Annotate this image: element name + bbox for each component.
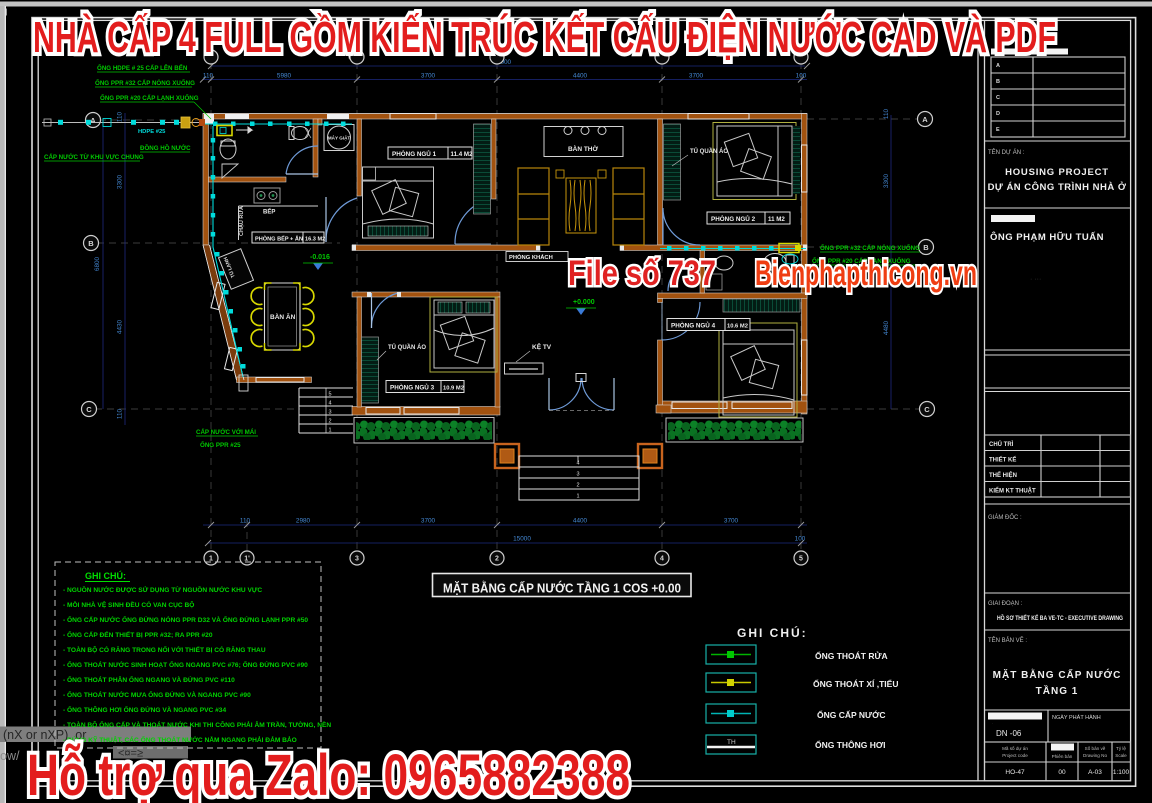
svg-text:C: C — [996, 95, 1000, 101]
svg-text:1: 1 — [328, 428, 331, 434]
svg-text:D: D — [996, 111, 1000, 117]
svg-text:BÀN ĂN: BÀN ĂN — [270, 312, 296, 321]
svg-text:KIỂM KT THUẬT: KIỂM KT THUẬT — [989, 488, 1036, 495]
svg-text:DỰ ÁN CÔNG TRÌNH NHÀ Ở: DỰ ÁN CÔNG TRÌNH NHÀ Ở — [988, 181, 1127, 193]
svg-text:BẾP: BẾP — [263, 209, 275, 216]
svg-text:MẶT BẰNG CẤP NƯỚC: MẶT BẰNG CẤP NƯỚC — [993, 668, 1122, 681]
svg-text:2: 2 — [328, 419, 331, 425]
svg-text:GIÁM ĐỐC :: GIÁM ĐỐC : — [988, 514, 1022, 521]
svg-text:11 M2: 11 M2 — [768, 216, 785, 223]
svg-text:A: A — [922, 115, 928, 124]
svg-text:B: B — [996, 79, 1000, 85]
svg-text:2980: 2980 — [296, 518, 311, 525]
svg-text:00: 00 — [1058, 769, 1066, 776]
svg-text:+0.000: +0.000 — [573, 299, 595, 306]
svg-text:100: 100 — [796, 73, 807, 80]
svg-text:C: C — [86, 405, 92, 414]
svg-text:A-03: A-03 — [1088, 769, 1102, 776]
svg-text:1': 1' — [244, 556, 250, 563]
svg-text:PHÒNG BẾP + ĂN: PHÒNG BẾP + ĂN — [255, 235, 303, 243]
svg-text:PHÒNG KHÁCH: PHÒNG KHÁCH — [509, 253, 553, 261]
svg-text:ỐNG THÔNG HƠI: ỐNG THÔNG HƠI — [815, 739, 886, 750]
svg-text:NHÀ CẤP 4 FULL GỒM KIẾN TRÚC K: NHÀ CẤP 4 FULL GỒM KIẾN TRÚC KẾT CẤU ĐIỆ… — [33, 12, 1056, 62]
svg-text:HỒ SƠ THIẾT KẾ BA VE-TC - EXEC: HỒ SƠ THIẾT KẾ BA VE-TC - EXECUTIVE DRAW… — [997, 615, 1123, 622]
svg-text:4: 4 — [660, 556, 664, 563]
svg-text:Bienphapthicong.vn: Bienphapthicong.vn — [755, 253, 977, 293]
svg-text:KỆ TV: KỆ TV — [532, 342, 552, 351]
svg-text:110: 110 — [203, 73, 214, 80]
svg-text:Scale: Scale — [1115, 753, 1127, 758]
svg-text:Mã số dự án: Mã số dự án — [1002, 746, 1028, 751]
svg-text:.: . — [992, 720, 993, 726]
svg-text:-0.016: -0.016 — [310, 254, 330, 261]
svg-text:TỦ QUẦN ÁO: TỦ QUẦN ÁO — [388, 344, 426, 351]
svg-text:TH: TH — [727, 739, 736, 746]
svg-text:Drawing No: Drawing No — [1083, 753, 1107, 758]
svg-text:ĐỒNG HỒ NƯỚC: ĐỒNG HỒ NƯỚC — [140, 144, 191, 152]
svg-text:2: 2 — [576, 483, 579, 489]
svg-text:GHI CHÚ:: GHI CHÚ: — [737, 625, 808, 640]
svg-text:3700: 3700 — [689, 73, 704, 80]
svg-text:CHẬU RỬA: CHẬU RỬA — [238, 206, 245, 236]
svg-text:3: 3 — [576, 472, 579, 478]
svg-text:110: 110 — [240, 518, 251, 525]
svg-text:15000: 15000 — [513, 536, 531, 543]
svg-text:ỐNG CẤP NƯỚC: ỐNG CẤP NƯỚC — [817, 709, 885, 720]
svg-text:ỐNG THOÁT XÍ ,TIỂU: ỐNG THOÁT XÍ ,TIỂU — [813, 678, 898, 689]
svg-text:PHÒNG NGỦ 2: PHÒNG NGỦ 2 — [711, 214, 756, 223]
svg-text:A: A — [90, 116, 96, 125]
svg-text:B: B — [88, 239, 94, 248]
svg-text:Hỗ trợ qua Zalo: 0965882388: Hỗ trợ qua Zalo: 0965882388 — [27, 743, 630, 803]
svg-text:PHÒNG NGỦ 4: PHÒNG NGỦ 4 — [671, 321, 716, 330]
svg-text:MÁY GIẶT: MÁY GIẶT — [328, 135, 351, 141]
svg-text:ÔNG PHẠM HỮU TUẤN: ÔNG PHẠM HỮU TUẤN — [990, 231, 1104, 243]
svg-text:TẦNG 1: TẦNG 1 — [1036, 684, 1079, 697]
svg-text:1:100: 1:100 — [1113, 769, 1130, 776]
svg-text:TỦ QUẦN ÁO: TỦ QUẦN ÁO — [690, 148, 728, 155]
svg-text:CẤP NƯỚC VỚI MÁI: CẤP NƯỚC VỚI MÁI — [196, 428, 256, 436]
svg-text:HDPE #25: HDPE #25 — [138, 129, 166, 135]
svg-text:3700: 3700 — [421, 518, 436, 525]
svg-text:3: 3 — [328, 410, 331, 416]
svg-text:E: E — [996, 127, 1000, 133]
svg-text:CHỦ TRÌ: CHỦ TRÌ — [989, 440, 1014, 448]
svg-text:3300: 3300 — [883, 173, 890, 188]
svg-text:Project code: Project code — [1002, 753, 1028, 758]
svg-text:MẶT BẰNG CẤP NƯỚC TẦNG 1 COS: MẶT BẰNG CẤP NƯỚC TẦNG 1 COS +0.00 — [443, 581, 681, 596]
svg-text:1: 1 — [209, 556, 213, 563]
svg-text:2: 2 — [495, 556, 499, 563]
svg-text:GIAI ĐOẠN :: GIAI ĐOẠN : — [988, 601, 1023, 607]
svg-text:ỐNG HDPE # 25 CẤP LÊN BỂN: ỐNG HDPE # 25 CẤP LÊN BỂN — [97, 64, 188, 72]
svg-text:NGÀY PHÁT HÀNH: NGÀY PHÁT HÀNH — [1052, 714, 1101, 721]
svg-text:10.6 M2: 10.6 M2 — [727, 324, 748, 330]
svg-text:ỐNG THOÁT RỬA: ỐNG THOÁT RỬA — [815, 650, 888, 661]
svg-text:3300: 3300 — [117, 174, 124, 189]
svg-text:ỐNG PPR #32 CẤP NÓNG XUỐNG: ỐNG PPR #32 CẤP NÓNG XUỐNG — [820, 244, 920, 252]
svg-text:4480: 4480 — [883, 320, 890, 335]
svg-text:GHI CHÚ:: GHI CHÚ: — [85, 570, 126, 581]
svg-text:3700: 3700 — [421, 73, 436, 80]
svg-text:PHÒNG NGỦ 3: PHÒNG NGỦ 3 — [390, 383, 435, 392]
svg-text:ow/: ow/ — [0, 749, 20, 763]
svg-text:THỂ HIỆN: THỂ HIỆN — [989, 471, 1017, 479]
svg-text:110: 110 — [883, 108, 890, 119]
svg-text:110: 110 — [117, 111, 124, 122]
svg-text:A: A — [996, 63, 1000, 69]
svg-text:6800: 6800 — [94, 256, 101, 271]
svg-text:DN -06: DN -06 — [996, 729, 1022, 738]
svg-text:5980: 5980 — [277, 73, 292, 80]
svg-text:ỐNG PPR #20 CẤP LẠNH XUỐNG: ỐNG PPR #20 CẤP LẠNH XUỐNG — [100, 95, 199, 102]
svg-text:4400: 4400 — [573, 73, 588, 80]
svg-text:5: 5 — [328, 392, 331, 398]
svg-text:100: 100 — [795, 536, 806, 543]
svg-text:ỐNG PPR #32 CẤP NÓNG XUỐNG: ỐNG PPR #32 CẤP NÓNG XUỐNG — [95, 79, 195, 87]
svg-text:· ···: · ··· — [1030, 276, 1041, 283]
svg-text:4: 4 — [328, 401, 331, 407]
svg-text:B: B — [923, 243, 929, 252]
svg-text:File số 737: File số 737 — [568, 253, 716, 293]
svg-text:THIẾT KẾ: THIẾT KẾ — [989, 457, 1016, 464]
svg-text:Số bản vẽ: Số bản vẽ — [1085, 746, 1106, 751]
svg-text:TÊN DỰ ÁN :: TÊN DỰ ÁN : — [988, 148, 1025, 156]
svg-text:HOUSING PROJECT: HOUSING PROJECT — [1005, 167, 1109, 178]
svg-text:10.9 M2: 10.9 M2 — [443, 386, 464, 392]
svg-text:HO-47: HO-47 — [1005, 769, 1025, 776]
svg-text:5: 5 — [799, 556, 803, 563]
svg-text:11.4 M2: 11.4 M2 — [451, 151, 474, 158]
svg-text:110: 110 — [117, 408, 124, 419]
svg-text:ỐNG PPR #25: ỐNG PPR #25 — [200, 442, 241, 449]
svg-text:4430: 4430 — [117, 319, 124, 334]
svg-text:Phiên bản: Phiên bản — [1052, 754, 1073, 759]
svg-text:C: C — [924, 405, 930, 414]
svg-text:TÊN BẢN VẼ :: TÊN BẢN VẼ : — [988, 636, 1027, 644]
svg-text:CẤP NƯỚC TỪ KHU VỰC CHUNG: CẤP NƯỚC TỪ KHU VỰC CHUNG — [44, 153, 144, 161]
svg-text:PHÒNG NGỦ 1: PHÒNG NGỦ 1 — [392, 149, 437, 158]
svg-text:BÀN THỜ: BÀN THỜ — [568, 144, 599, 153]
svg-text:3700: 3700 — [724, 518, 739, 525]
svg-text:Tỷ lệ: Tỷ lệ — [1116, 745, 1126, 751]
svg-text:16.3 M2: 16.3 M2 — [305, 237, 325, 243]
svg-text:4400: 4400 — [573, 518, 588, 525]
svg-text:3: 3 — [355, 556, 359, 563]
svg-text:1: 1 — [576, 494, 579, 500]
